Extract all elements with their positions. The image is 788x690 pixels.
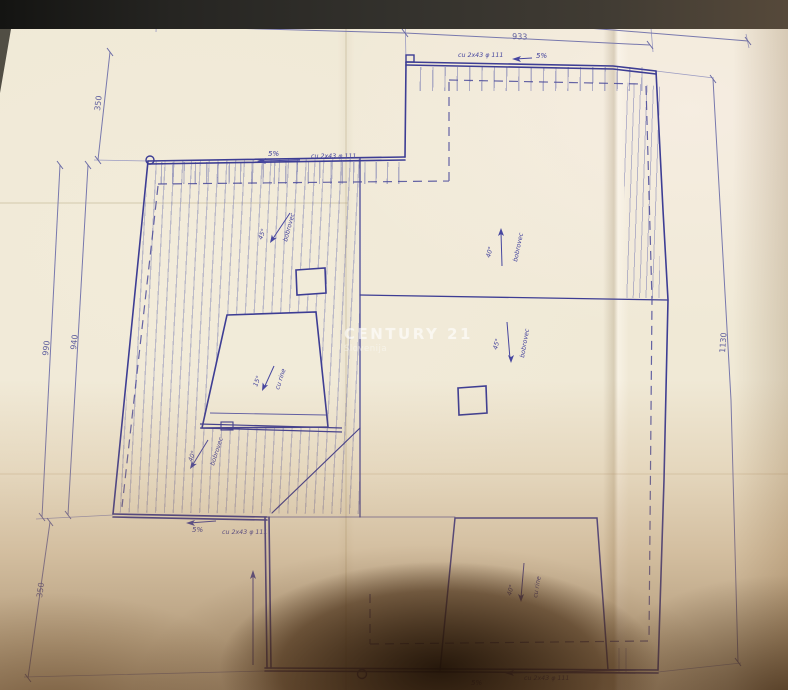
- roof-material-label: bobrovec: [512, 232, 525, 263]
- chimney-right: [458, 386, 487, 415]
- dim-label-left-outer: 990: [41, 340, 52, 356]
- chimney-left: [296, 268, 326, 295]
- mid-division-line: [360, 295, 668, 300]
- right-edge: [656, 71, 668, 670]
- roof-slope-angle: 40°: [186, 449, 197, 462]
- slope-annotation-lower-left: 40° bobrovec: [186, 436, 225, 471]
- slope-annotation-middle-right: 45° bobrovec: [491, 322, 531, 363]
- dim-label-left-upper: 350: [93, 95, 104, 111]
- watermark: CENTURY 21 Slovenija: [344, 327, 473, 354]
- gutter-label: cu 2x43 φ 111: [524, 675, 569, 682]
- gutter-label: cu 2x43 φ 111: [458, 52, 503, 59]
- interior-dim-arrow: [250, 570, 256, 665]
- eave-slope-label: 5%: [192, 526, 203, 534]
- building-outline: [113, 62, 668, 673]
- blueprint-photo: 1045 300 933 350 990 940 350 1130: [0, 0, 788, 690]
- roof-slope-angle: 45°: [256, 227, 267, 240]
- circle-marker-top-left: [146, 156, 154, 164]
- slope-annotation-upper-right: 40° bobrovec: [484, 228, 525, 266]
- dim-line-right-total: [713, 79, 738, 662]
- lower-left-eave: [113, 514, 267, 520]
- background-top-band: [0, 0, 788, 29]
- wall-outline-dashed: [122, 80, 652, 644]
- eave-annotation-top-right: cu 2x43 φ 111 5%: [458, 52, 547, 62]
- dormer-terrace-outline: [202, 312, 328, 428]
- dim-line-left-lower: [28, 522, 50, 678]
- top-right-eave: [406, 62, 656, 74]
- eave-slope-label: 5%: [536, 52, 547, 60]
- roof-slope-angle: 40°: [484, 246, 495, 259]
- left-edge: [113, 161, 148, 514]
- roof-material-label: bobrovec: [282, 212, 296, 243]
- gutter-label: cu 2x43 φ 111: [311, 153, 356, 160]
- roof-material-label: cu rine: [532, 576, 543, 599]
- roof-slope-angle: 40°: [505, 584, 516, 597]
- slope-annotation-bottom-dormer: 40° cu rine: [505, 563, 543, 602]
- upper-step-wall: [405, 62, 406, 157]
- slope-annotation-upper-left: 45° bobrovec: [256, 212, 296, 245]
- eave-slope-label: 5%: [268, 150, 279, 158]
- eave-annotation-lower-left: 5% cu 2x43 φ 111: [186, 520, 267, 536]
- roof-material-label: bobrovec: [519, 328, 531, 359]
- bottom-wing-left-edge: [265, 517, 271, 668]
- dim-label-left-inner: 940: [69, 334, 80, 350]
- dim-label-top-right: 933: [512, 32, 528, 42]
- square-marker-top: [406, 55, 414, 62]
- watermark-brand: CENTURY 21: [344, 327, 473, 342]
- gutter-label: cu 2x43 φ 111: [222, 529, 267, 536]
- roof-slope-angle: 45°: [491, 338, 502, 351]
- eave-slope-label: 5%: [471, 679, 482, 687]
- dimension-labels: 1045 300 933 350 990 940 350 1130: [35, 5, 728, 598]
- roof-material-label: bobrovec: [209, 436, 225, 467]
- watermark-region: Slovenija: [344, 345, 473, 354]
- dim-label-right-total: 1130: [718, 332, 728, 353]
- valley-line: [272, 428, 360, 513]
- dim-label-left-lower: 350: [35, 582, 46, 598]
